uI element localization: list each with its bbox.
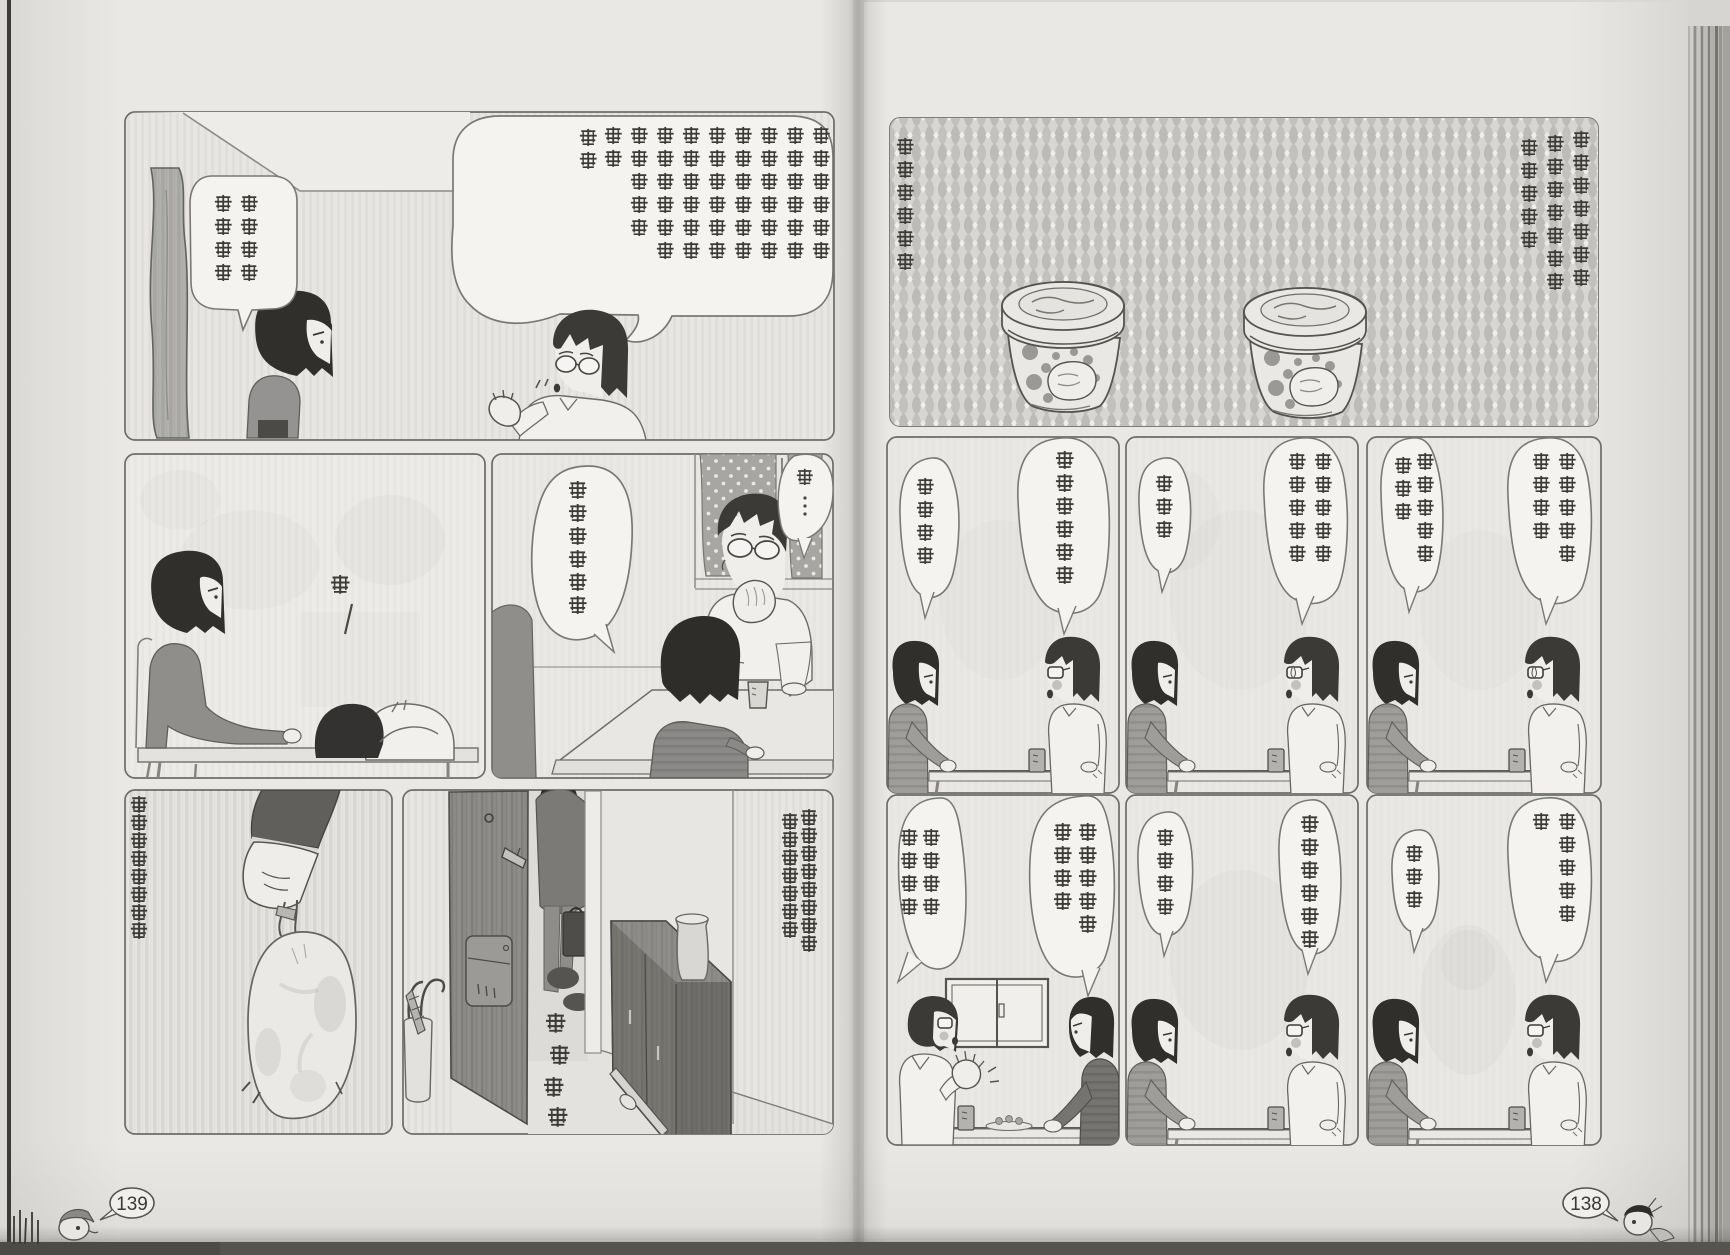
svg-text:139: 139 — [116, 1194, 148, 1215]
svg-text:138: 138 — [1570, 1194, 1602, 1215]
